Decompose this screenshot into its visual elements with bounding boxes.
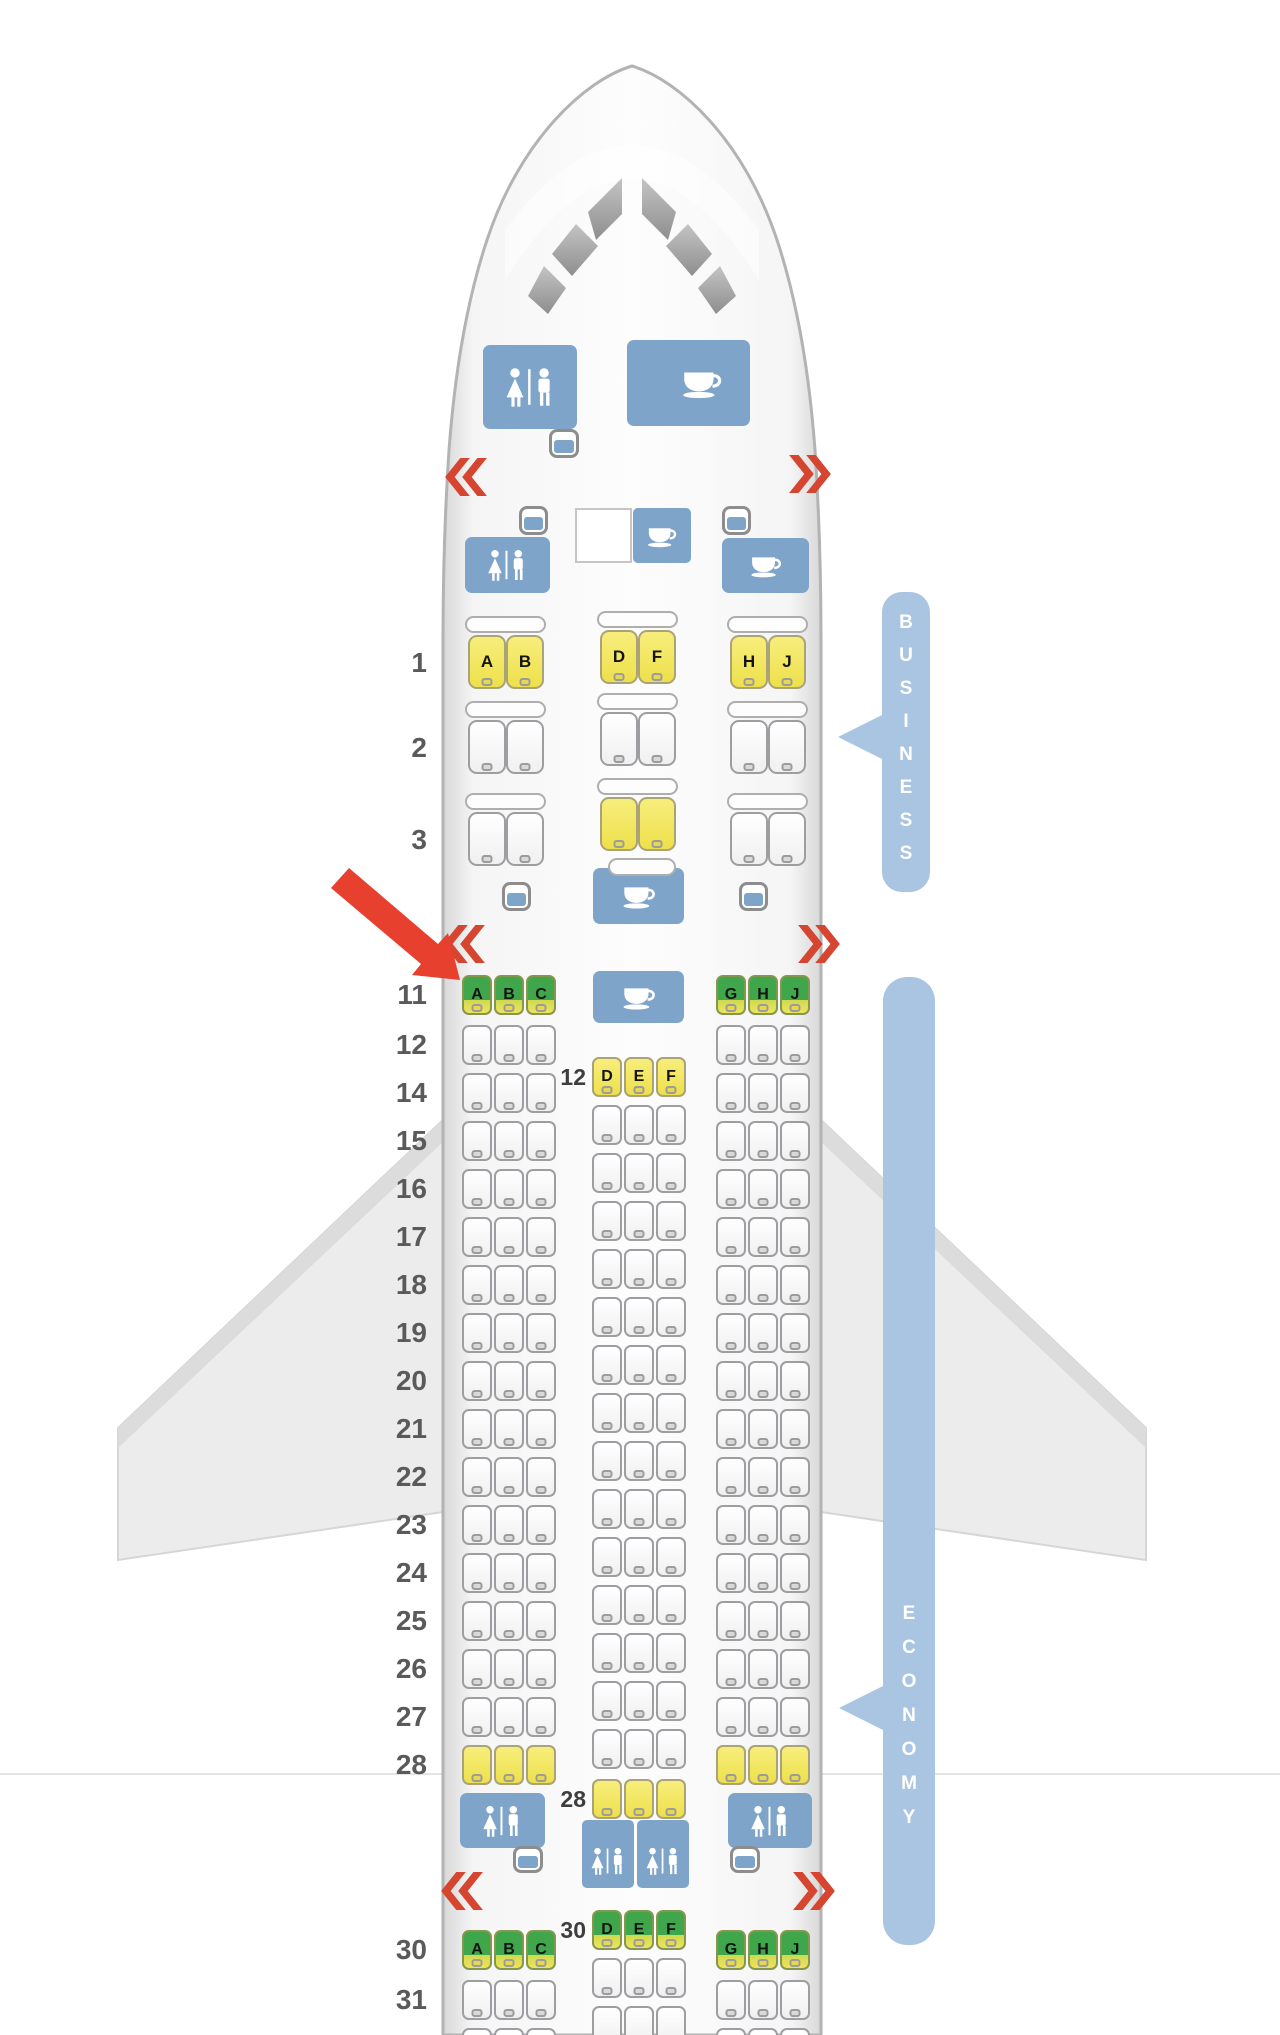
- seat-22A[interactable]: [462, 1457, 492, 1497]
- business-console: [727, 793, 808, 810]
- seat-17H[interactable]: [748, 1217, 778, 1257]
- seat-20C[interactable]: [526, 1361, 556, 1401]
- seat-27C[interactable]: [526, 1697, 556, 1737]
- seat-aftF[interactable]: [656, 2006, 686, 2035]
- seat-18B[interactable]: [494, 1265, 524, 1305]
- seat-21E[interactable]: [624, 1441, 654, 1481]
- seat-17G[interactable]: [716, 1217, 746, 1257]
- seat-1A[interactable]: A: [468, 635, 506, 689]
- seat-14J[interactable]: [780, 1073, 810, 1113]
- seat-26D[interactable]: [592, 1681, 622, 1721]
- seat-18D[interactable]: [592, 1297, 622, 1337]
- wc-figures-icon: [746, 1804, 794, 1838]
- row-label-21: 21: [385, 1413, 427, 1443]
- wc-figures-icon: [500, 366, 560, 408]
- seat-31G[interactable]: [716, 1980, 746, 2020]
- seat-aftE[interactable]: [624, 2006, 654, 2035]
- seat-20D[interactable]: [592, 1393, 622, 1433]
- seat-17C[interactable]: [526, 1217, 556, 1257]
- business-console: [727, 616, 808, 633]
- row-label-24: 24: [385, 1557, 427, 1587]
- row-label-28: 28: [385, 1749, 427, 1779]
- seat-17E[interactable]: [624, 1249, 654, 1289]
- seat-11J[interactable]: J: [780, 975, 810, 1015]
- seat-11H[interactable]: H: [748, 975, 778, 1015]
- row-label-27: 27: [385, 1701, 427, 1731]
- seat-3F[interactable]: [638, 797, 676, 851]
- business-class-bar: BUSINESS: [882, 592, 930, 892]
- seat-18H[interactable]: [748, 1265, 778, 1305]
- seat-16F[interactable]: [656, 1201, 686, 1241]
- seat-2A[interactable]: [468, 720, 506, 774]
- seat-14E[interactable]: [624, 1105, 654, 1145]
- seat-20J[interactable]: [780, 1361, 810, 1401]
- closet-icon: [722, 506, 751, 535]
- seat-25A[interactable]: [462, 1601, 492, 1641]
- seat-30F[interactable]: F: [656, 1910, 686, 1950]
- seat-12G[interactable]: [716, 1025, 746, 1065]
- seat-aftA[interactable]: [462, 2028, 492, 2035]
- seat-26C[interactable]: [526, 1649, 556, 1689]
- seat-26E[interactable]: [624, 1681, 654, 1721]
- row-label-16: 16: [385, 1173, 427, 1203]
- seat-20F[interactable]: [656, 1393, 686, 1433]
- seat-16D[interactable]: [592, 1201, 622, 1241]
- economy-arrow-icon: [839, 1685, 885, 1731]
- seat-28D[interactable]: [592, 1779, 622, 1819]
- seat-aftD[interactable]: [592, 2006, 622, 2035]
- seat-28F[interactable]: [656, 1779, 686, 1819]
- seat-30J[interactable]: J: [780, 1930, 810, 1970]
- seat-2B[interactable]: [506, 720, 544, 774]
- seat-24F[interactable]: [656, 1585, 686, 1625]
- seat-23C[interactable]: [526, 1505, 556, 1545]
- seat-23G[interactable]: [716, 1505, 746, 1545]
- seat-17B[interactable]: [494, 1217, 524, 1257]
- seat-12C[interactable]: [526, 1025, 556, 1065]
- closet-icon: [502, 882, 531, 911]
- seat-14H[interactable]: [748, 1073, 778, 1113]
- seat-19E[interactable]: [624, 1345, 654, 1385]
- seat-2J[interactable]: [768, 720, 806, 774]
- seat-28G[interactable]: [716, 1745, 746, 1785]
- lavatory-aft-center-2: [637, 1820, 689, 1888]
- seat-24G[interactable]: [716, 1553, 746, 1593]
- row-label-1: 1: [385, 647, 427, 677]
- seat-22B[interactable]: [494, 1457, 524, 1497]
- seat-20H[interactable]: [748, 1361, 778, 1401]
- seat-14B[interactable]: [494, 1073, 524, 1113]
- seat-14D[interactable]: [592, 1105, 622, 1145]
- seat-25G[interactable]: [716, 1601, 746, 1641]
- galley-row11: [593, 971, 684, 1023]
- business-console: [597, 693, 678, 710]
- seat-15E[interactable]: [624, 1153, 654, 1193]
- seat-21C[interactable]: [526, 1409, 556, 1449]
- seat-19G[interactable]: [716, 1313, 746, 1353]
- seat-12E[interactable]: E: [624, 1057, 654, 1097]
- seat-26B[interactable]: [494, 1649, 524, 1689]
- seat-24A[interactable]: [462, 1553, 492, 1593]
- row-label-23: 23: [385, 1509, 427, 1539]
- seat-14A[interactable]: [462, 1073, 492, 1113]
- seat-20B[interactable]: [494, 1361, 524, 1401]
- seat-27B[interactable]: [494, 1697, 524, 1737]
- business-arrow-icon: [838, 714, 884, 760]
- wc-figures-icon: [642, 1846, 684, 1876]
- seat-21J[interactable]: [780, 1409, 810, 1449]
- seat-16E[interactable]: [624, 1201, 654, 1241]
- closet-icon: [513, 1846, 543, 1873]
- seat-19B[interactable]: [494, 1313, 524, 1353]
- business-footrest: [608, 858, 676, 876]
- seat-18J[interactable]: [780, 1265, 810, 1305]
- seat-12D[interactable]: D: [592, 1057, 622, 1097]
- seat-1B[interactable]: B: [506, 635, 544, 689]
- business-console: [465, 701, 546, 718]
- seat-25H[interactable]: [748, 1601, 778, 1641]
- seat-19F[interactable]: [656, 1345, 686, 1385]
- seat-26H[interactable]: [748, 1649, 778, 1689]
- exit-right-icon: [788, 455, 832, 498]
- seat-18C[interactable]: [526, 1265, 556, 1305]
- seat-24B[interactable]: [494, 1553, 524, 1593]
- seat-25D[interactable]: [592, 1633, 622, 1673]
- seat-17A[interactable]: [462, 1217, 492, 1257]
- seat-23J[interactable]: [780, 1505, 810, 1545]
- seat-25B[interactable]: [494, 1601, 524, 1641]
- seat-27E[interactable]: [624, 1729, 654, 1769]
- seat-27J[interactable]: [780, 1697, 810, 1737]
- seat-31A[interactable]: [462, 1980, 492, 2020]
- seat-11A[interactable]: A: [462, 975, 492, 1015]
- coffee-cup-icon: [645, 524, 679, 548]
- seat-28B[interactable]: [494, 1745, 524, 1785]
- seat-31H[interactable]: [748, 1980, 778, 2020]
- seat-21G[interactable]: [716, 1409, 746, 1449]
- seat-14G[interactable]: [716, 1073, 746, 1113]
- seat-30D[interactable]: D: [592, 1910, 622, 1950]
- exit-left-icon: [442, 925, 486, 968]
- seat-21B[interactable]: [494, 1409, 524, 1449]
- seat-23D[interactable]: [592, 1537, 622, 1577]
- business-class-label: BUSINESS: [882, 606, 930, 870]
- seat-16J[interactable]: [780, 1169, 810, 1209]
- seat-16B[interactable]: [494, 1169, 524, 1209]
- business-console: [727, 701, 808, 718]
- row-label-19: 19: [385, 1317, 427, 1347]
- seat-1F[interactable]: F: [638, 630, 676, 684]
- seat-aftG[interactable]: [716, 2028, 746, 2035]
- center-row-label-12: 12: [548, 1064, 586, 1090]
- center-row-label-30: 30: [548, 1917, 586, 1943]
- seat-19J[interactable]: [780, 1313, 810, 1353]
- row-label-3: 3: [385, 824, 427, 854]
- seat-aftJ[interactable]: [780, 2028, 810, 2035]
- seat-19C[interactable]: [526, 1313, 556, 1353]
- row-label-14: 14: [385, 1077, 427, 1107]
- row-label-26: 26: [385, 1653, 427, 1683]
- row-label-31: 31: [385, 1984, 427, 2014]
- row-label-20: 20: [385, 1365, 427, 1395]
- seat-15G[interactable]: [716, 1121, 746, 1161]
- row-label-22: 22: [385, 1461, 427, 1491]
- seat-27D[interactable]: [592, 1729, 622, 1769]
- seat-2F[interactable]: [638, 712, 676, 766]
- seat-aftF[interactable]: [656, 1958, 686, 1998]
- seat-12A[interactable]: [462, 1025, 492, 1065]
- seat-3H[interactable]: [730, 812, 768, 866]
- seat-21H[interactable]: [748, 1409, 778, 1449]
- seat-14F[interactable]: [656, 1105, 686, 1145]
- seat-25F[interactable]: [656, 1633, 686, 1673]
- row-label-2: 2: [385, 732, 427, 762]
- closet-icon: [730, 1846, 760, 1873]
- closet-icon: [739, 882, 768, 911]
- seat-24H[interactable]: [748, 1553, 778, 1593]
- seat-19D[interactable]: [592, 1345, 622, 1385]
- seat-12J[interactable]: [780, 1025, 810, 1065]
- seat-19H[interactable]: [748, 1313, 778, 1353]
- row-label-18: 18: [385, 1269, 427, 1299]
- seat-23E[interactable]: [624, 1537, 654, 1577]
- seat-26G[interactable]: [716, 1649, 746, 1689]
- seat-17D[interactable]: [592, 1249, 622, 1289]
- seat-24J[interactable]: [780, 1553, 810, 1593]
- seat-3A[interactable]: [468, 812, 506, 866]
- wc-figures-icon: [587, 1846, 629, 1876]
- seat-27A[interactable]: [462, 1697, 492, 1737]
- business-console: [465, 793, 546, 810]
- seat-21D[interactable]: [592, 1441, 622, 1481]
- lavatory-front: [483, 345, 577, 429]
- exit-right-icon: [797, 925, 841, 968]
- seat-23H[interactable]: [748, 1505, 778, 1545]
- seat-26F[interactable]: [656, 1681, 686, 1721]
- exit-left-icon: [444, 458, 488, 501]
- seat-22J[interactable]: [780, 1457, 810, 1497]
- seat-18A[interactable]: [462, 1265, 492, 1305]
- seat-22F[interactable]: [656, 1489, 686, 1529]
- seat-22E[interactable]: [624, 1489, 654, 1529]
- seat-aftH[interactable]: [748, 2028, 778, 2035]
- seat-17J[interactable]: [780, 1217, 810, 1257]
- seat-1D[interactable]: D: [600, 630, 638, 684]
- seat-3D[interactable]: [600, 797, 638, 851]
- exit-left-icon: [440, 1872, 484, 1915]
- seat-25C[interactable]: [526, 1601, 556, 1641]
- seat-11B[interactable]: B: [494, 975, 524, 1015]
- lavatory-aft-left: [460, 1793, 545, 1848]
- galley-front: [627, 340, 750, 426]
- seat-16C[interactable]: [526, 1169, 556, 1209]
- row-label-25: 25: [385, 1605, 427, 1635]
- seat-16A[interactable]: [462, 1169, 492, 1209]
- seat-20A[interactable]: [462, 1361, 492, 1401]
- seat-11C[interactable]: C: [526, 975, 556, 1015]
- seat-30A[interactable]: A: [462, 1930, 492, 1970]
- right-wing: [821, 1120, 1146, 1560]
- seat-28J[interactable]: [780, 1745, 810, 1785]
- seat-30H[interactable]: H: [748, 1930, 778, 1970]
- seat-22G[interactable]: [716, 1457, 746, 1497]
- economy-class-label: ECONOMY: [883, 1597, 935, 1835]
- seat-3B[interactable]: [506, 812, 544, 866]
- seat-aftB[interactable]: [494, 2028, 524, 2035]
- seat-24D[interactable]: [592, 1585, 622, 1625]
- seat-15B[interactable]: [494, 1121, 524, 1161]
- seat-23A[interactable]: [462, 1505, 492, 1545]
- seat-30G[interactable]: G: [716, 1930, 746, 1970]
- seat-11G[interactable]: G: [716, 975, 746, 1015]
- coffee-cup-icon: [679, 367, 725, 399]
- seat-22C[interactable]: [526, 1457, 556, 1497]
- seat-aftE[interactable]: [624, 1958, 654, 1998]
- seat-25E[interactable]: [624, 1633, 654, 1673]
- seat-28A[interactable]: [462, 1745, 492, 1785]
- seat-3J[interactable]: [768, 812, 806, 866]
- seat-30B[interactable]: B: [494, 1930, 524, 1970]
- seat-26J[interactable]: [780, 1649, 810, 1689]
- seat-16G[interactable]: [716, 1169, 746, 1209]
- wc-figures-icon: [483, 548, 531, 582]
- lavatory-aft-center-1: [582, 1820, 634, 1888]
- row-label-30: 30: [385, 1934, 427, 1964]
- row-label-11: 11: [385, 979, 427, 1009]
- seat-24C[interactable]: [526, 1553, 556, 1593]
- seat-15H[interactable]: [748, 1121, 778, 1161]
- seat-21A[interactable]: [462, 1409, 492, 1449]
- business-console: [597, 611, 678, 628]
- seat-aftC[interactable]: [526, 2028, 556, 2035]
- seat-31C[interactable]: [526, 1980, 556, 2020]
- lavatory-aft-right: [728, 1793, 812, 1848]
- seat-20E[interactable]: [624, 1393, 654, 1433]
- closet-icon: [519, 506, 548, 535]
- seat-1J[interactable]: J: [768, 635, 806, 689]
- seat-20G[interactable]: [716, 1361, 746, 1401]
- seat-15D[interactable]: [592, 1153, 622, 1193]
- storage-box: [575, 508, 632, 563]
- seat-12F[interactable]: F: [656, 1057, 686, 1097]
- seat-26A[interactable]: [462, 1649, 492, 1689]
- seat-12B[interactable]: [494, 1025, 524, 1065]
- business-console: [465, 616, 546, 633]
- seat-aftD[interactable]: [592, 1958, 622, 1998]
- seat-27H[interactable]: [748, 1697, 778, 1737]
- seat-28H[interactable]: [748, 1745, 778, 1785]
- seat-28C[interactable]: [526, 1745, 556, 1785]
- seat-2D[interactable]: [600, 712, 638, 766]
- seat-22H[interactable]: [748, 1457, 778, 1497]
- seat-15F[interactable]: [656, 1153, 686, 1193]
- business-console: [597, 778, 678, 795]
- seat-21F[interactable]: [656, 1441, 686, 1481]
- seat-28E[interactable]: [624, 1779, 654, 1819]
- economy-class-bar: ECONOMY: [883, 977, 935, 1945]
- coffee-cup-icon: [620, 883, 658, 909]
- wc-figures-icon: [478, 1804, 526, 1838]
- seat-22D[interactable]: [592, 1489, 622, 1529]
- seat-30E[interactable]: E: [624, 1910, 654, 1950]
- seat-23B[interactable]: [494, 1505, 524, 1545]
- row-label-15: 15: [385, 1125, 427, 1155]
- seat-24E[interactable]: [624, 1585, 654, 1625]
- coffee-cup-icon: [620, 984, 658, 1010]
- seat-15C[interactable]: [526, 1121, 556, 1161]
- seat-16H[interactable]: [748, 1169, 778, 1209]
- seat-31J[interactable]: [780, 1980, 810, 2020]
- seat-map-scene: BUSINESS ECONOMY 11ABCGHJ121415161718192…: [0, 0, 1280, 2035]
- row-label-17: 17: [385, 1221, 427, 1251]
- seat-27G[interactable]: [716, 1697, 746, 1737]
- seat-27F[interactable]: [656, 1729, 686, 1769]
- seat-18G[interactable]: [716, 1265, 746, 1305]
- seat-15J[interactable]: [780, 1121, 810, 1161]
- closet-icon: [549, 429, 579, 458]
- row-label-12: 12: [385, 1029, 427, 1059]
- seat-1H[interactable]: H: [730, 635, 768, 689]
- seat-19A[interactable]: [462, 1313, 492, 1353]
- coffee-cup-icon: [748, 553, 784, 578]
- galley-door2-center: [633, 508, 691, 563]
- seat-17F[interactable]: [656, 1249, 686, 1289]
- seat-31B[interactable]: [494, 1980, 524, 2020]
- galley-mid: [593, 868, 684, 924]
- seat-18E[interactable]: [624, 1297, 654, 1337]
- exit-right-icon: [792, 1872, 836, 1915]
- seat-15A[interactable]: [462, 1121, 492, 1161]
- seat-12H[interactable]: [748, 1025, 778, 1065]
- center-row-label-28: 28: [548, 1786, 586, 1812]
- lavatory-door2-left: [465, 537, 550, 593]
- galley-door2-right: [722, 538, 809, 593]
- seat-18F[interactable]: [656, 1297, 686, 1337]
- seat-2H[interactable]: [730, 720, 768, 774]
- seat-23F[interactable]: [656, 1537, 686, 1577]
- seat-25J[interactable]: [780, 1601, 810, 1641]
